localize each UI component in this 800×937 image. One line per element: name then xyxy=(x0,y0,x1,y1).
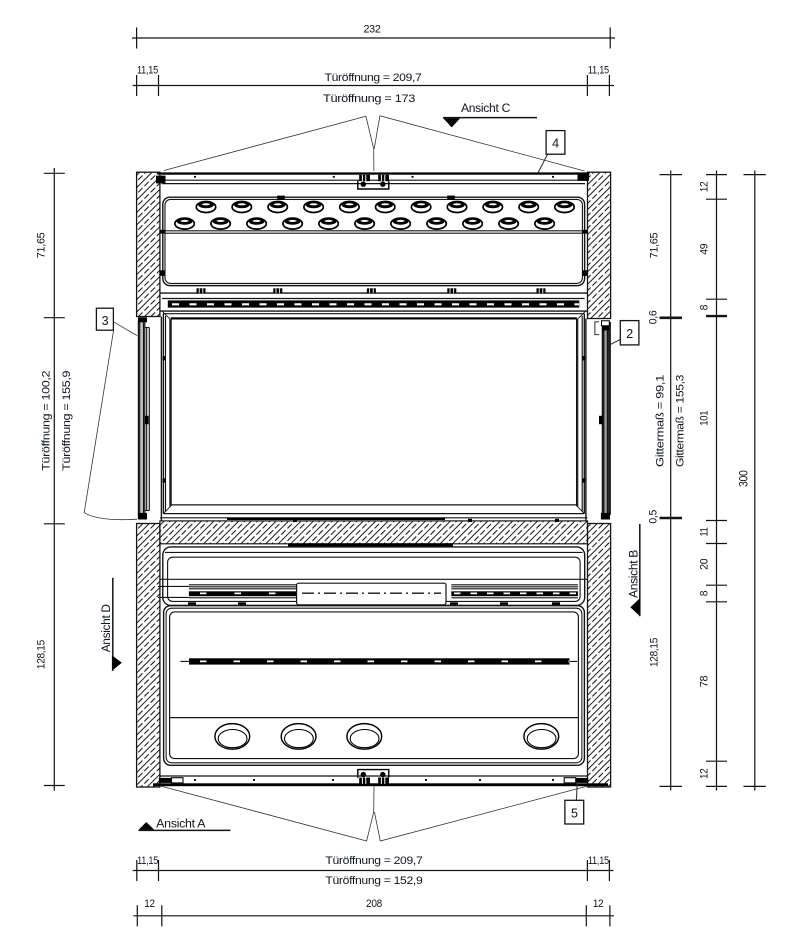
svg-text:Türöffnung = 100,2: Türöffnung = 100,2 xyxy=(41,371,53,471)
svg-text:Ansicht B: Ansicht B xyxy=(626,550,640,598)
svg-text:71,65: 71,65 xyxy=(35,233,47,259)
svg-text:Ansicht C: Ansicht C xyxy=(461,101,510,115)
svg-text:12: 12 xyxy=(698,769,710,780)
svg-text:0,5: 0,5 xyxy=(648,510,660,524)
svg-text:Türöffnung = 152,9: Türöffnung = 152,9 xyxy=(325,875,422,887)
svg-text:2: 2 xyxy=(626,327,633,341)
svg-text:11,15: 11,15 xyxy=(137,855,158,867)
svg-text:78: 78 xyxy=(698,676,710,688)
svg-text:Türöffnung = 155,9: Türöffnung = 155,9 xyxy=(61,371,73,471)
svg-text:5: 5 xyxy=(571,807,578,821)
svg-text:20: 20 xyxy=(698,559,710,570)
svg-text:Türöffnung = 209,7: Türöffnung = 209,7 xyxy=(325,855,422,867)
svg-text:Türöffnung = 209,7: Türöffnung = 209,7 xyxy=(325,72,422,84)
svg-text:Ansicht A: Ansicht A xyxy=(156,816,206,830)
svg-text:11,15: 11,15 xyxy=(588,65,609,77)
svg-text:11: 11 xyxy=(698,528,710,537)
svg-text:4: 4 xyxy=(552,137,559,151)
svg-text:71,65: 71,65 xyxy=(649,233,661,259)
svg-text:12: 12 xyxy=(593,898,604,910)
svg-text:128,15: 128,15 xyxy=(649,638,661,667)
svg-text:232: 232 xyxy=(364,23,381,35)
svg-text:Gittermaß = 155,3: Gittermaß = 155,3 xyxy=(675,375,687,467)
svg-text:101: 101 xyxy=(698,411,710,426)
svg-text:8: 8 xyxy=(698,591,710,597)
svg-text:3: 3 xyxy=(102,314,109,328)
svg-text:Türöffnung = 173: Türöffnung = 173 xyxy=(323,93,415,105)
svg-text:12: 12 xyxy=(698,182,710,193)
svg-text:11,15: 11,15 xyxy=(137,65,158,77)
svg-text:11,15: 11,15 xyxy=(588,855,609,867)
svg-text:12: 12 xyxy=(144,898,155,910)
svg-text:49: 49 xyxy=(698,244,710,255)
svg-text:300: 300 xyxy=(739,471,751,488)
svg-text:8: 8 xyxy=(698,305,710,311)
svg-text:208: 208 xyxy=(366,898,382,910)
svg-text:Ansicht D: Ansicht D xyxy=(99,604,113,652)
svg-text:Gittermaß = 99,1: Gittermaß = 99,1 xyxy=(655,375,667,467)
svg-text:0,6: 0,6 xyxy=(648,311,660,325)
svg-text:128,15: 128,15 xyxy=(35,640,47,669)
